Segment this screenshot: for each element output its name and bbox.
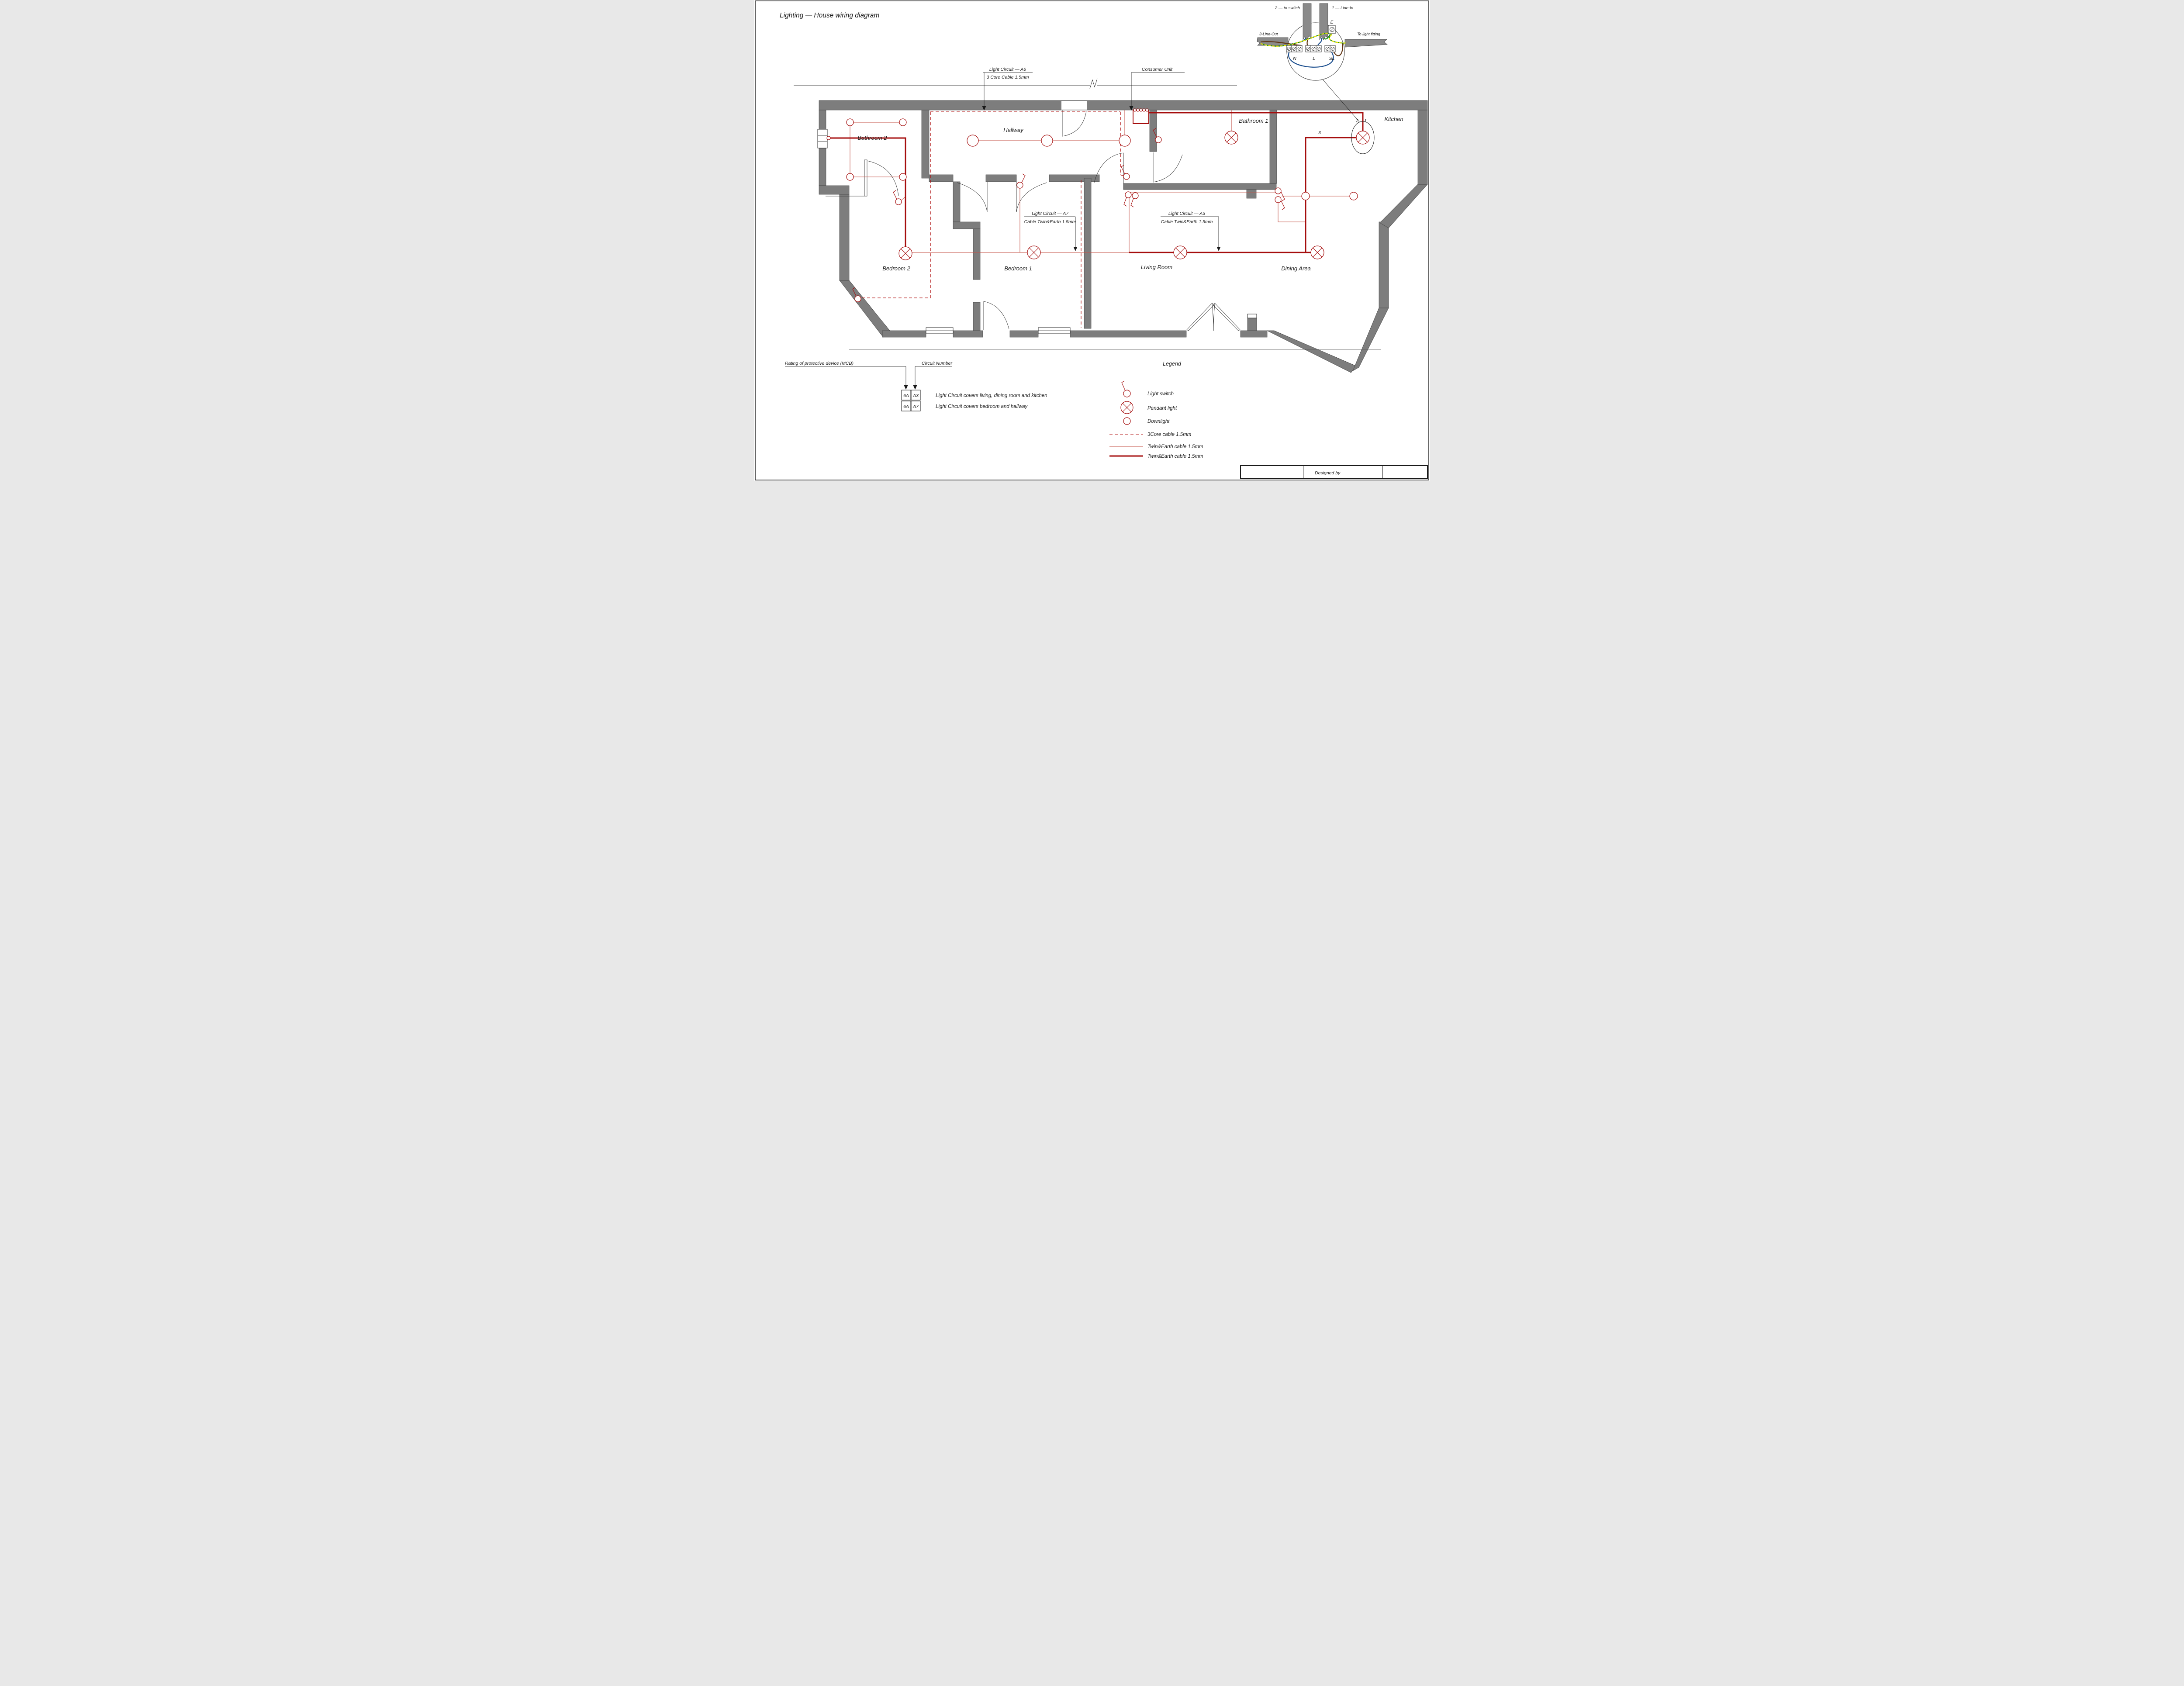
terminal-sl-label: SL bbox=[1329, 56, 1335, 61]
label-to-switch: 2 — to switch bbox=[1275, 6, 1300, 10]
consumer-unit-box bbox=[1133, 111, 1149, 124]
wall-stub-dining bbox=[1247, 190, 1256, 198]
room-label-bedroom1: Bedroom 1 bbox=[1004, 265, 1032, 272]
title-block: Designed by bbox=[1241, 466, 1427, 479]
drawing-sheet: Lighting — House wiring diagram bbox=[754, 0, 1430, 481]
circuit-number-label: Circuit Number bbox=[922, 361, 953, 366]
wall-bathroom2-right bbox=[922, 110, 929, 178]
legend-title: Legend bbox=[1163, 361, 1182, 367]
legend-thin-cable-label: Twin&Earth cable 1.5mm bbox=[1147, 444, 1203, 449]
downlight-icon bbox=[967, 135, 978, 146]
wall-bottom-4 bbox=[1070, 331, 1186, 337]
legend-downlight-label: Downlight bbox=[1147, 419, 1170, 424]
legend-thick-cable-label: Twin&Earth cable 1.5mm bbox=[1147, 454, 1203, 459]
window-left bbox=[818, 129, 827, 148]
wire-number-1: 1 bbox=[1364, 119, 1367, 124]
downlight-icon bbox=[1302, 192, 1310, 200]
pendant-light-icon bbox=[1027, 246, 1040, 259]
room-label-hallway: Hallway bbox=[1003, 127, 1024, 133]
a6-label: Light Circuit — A6 bbox=[989, 67, 1026, 72]
svg-text:A3: A3 bbox=[912, 393, 919, 398]
wiring-diagram-canvas: Lighting — House wiring diagram bbox=[754, 0, 1430, 481]
pendant-light-icon bbox=[1311, 246, 1324, 259]
wall-bottom-5 bbox=[1241, 331, 1267, 337]
svg-text:6A: 6A bbox=[903, 404, 909, 409]
a3-label: Light Circuit — A3 bbox=[1168, 211, 1205, 216]
pendant-light-icon bbox=[899, 247, 912, 260]
wall-divider-upper bbox=[953, 182, 960, 222]
pendant-light-icon bbox=[1174, 246, 1187, 259]
wall-divider-step bbox=[953, 222, 980, 229]
room-label-bedroom2: Bedroom 2 bbox=[882, 265, 910, 272]
chimney-cap bbox=[1248, 314, 1257, 318]
a6-cable-label: 3 Core Cable 1.5mm bbox=[987, 75, 1029, 80]
wall-divider-mid bbox=[973, 229, 980, 280]
mcb-row-1-desc: Light Circuit covers living, dining room… bbox=[936, 393, 1047, 398]
wall-left-step bbox=[819, 186, 849, 194]
downlight-icon bbox=[847, 173, 854, 180]
room-label-kitchen: Kitchen bbox=[1384, 116, 1403, 122]
wall-bathroom1-left bbox=[1150, 110, 1157, 152]
wall-bottom-2 bbox=[953, 331, 983, 337]
page-title: Lighting — House wiring diagram bbox=[780, 12, 879, 19]
front-door-gap bbox=[1061, 101, 1087, 110]
terminal-l-block bbox=[1306, 45, 1321, 52]
terminal-n-block bbox=[1286, 45, 1302, 52]
svg-text:6A: 6A bbox=[903, 393, 909, 398]
downlight-icon bbox=[1119, 135, 1130, 146]
svg-text:A7: A7 bbox=[912, 404, 919, 409]
wall-hallway-bottom-3 bbox=[1049, 175, 1099, 182]
designed-by-label: Designed by bbox=[1315, 470, 1341, 476]
terminal-n-label: N bbox=[1293, 56, 1296, 61]
wire-number-2: 2 bbox=[1355, 119, 1358, 124]
downlight-icon bbox=[1041, 135, 1053, 146]
pendant-light-icon bbox=[1225, 131, 1238, 144]
wall-hallway-bottom-2 bbox=[986, 175, 1016, 182]
legend-switch-label: Light switch bbox=[1147, 391, 1174, 397]
downlight-icon bbox=[899, 119, 906, 126]
downlight-icon bbox=[899, 173, 906, 180]
downlight-icon bbox=[1123, 418, 1130, 425]
terminal-sl-block bbox=[1325, 45, 1335, 52]
light-switch-icon bbox=[1123, 390, 1130, 397]
wall-right-upper bbox=[1418, 110, 1427, 184]
wall-left-upper bbox=[819, 110, 826, 129]
wall-top bbox=[819, 100, 1427, 110]
mcb-rating-label: Rating of protective device (MCB) bbox=[785, 361, 854, 366]
wall-bathroom1-right bbox=[1270, 110, 1277, 183]
wall-bedroom2-left bbox=[840, 194, 849, 280]
room-label-living: Living Room bbox=[1141, 264, 1172, 270]
mcb-row-2-desc: Light Circuit covers bedroom and hallway bbox=[936, 404, 1028, 409]
label-line-out: 3-Line-Out bbox=[1259, 32, 1278, 36]
label-line-in: 1 — Line-In bbox=[1332, 6, 1353, 10]
wall-bedroom1-right bbox=[1084, 178, 1091, 328]
wall-bottom-3 bbox=[1010, 331, 1038, 337]
a7-cable-label: Cable Twin&Earth 1.5mm bbox=[1024, 219, 1076, 225]
window-bottom-1 bbox=[926, 328, 953, 333]
label-to-light-fitting: To light fitting bbox=[1357, 32, 1380, 36]
a7-label: Light Circuit — A7 bbox=[1032, 211, 1069, 216]
wire-number-3: 3 bbox=[1318, 131, 1321, 135]
downlight-icon bbox=[847, 119, 854, 126]
chimney-breast bbox=[1248, 318, 1257, 331]
consumer-unit-label: Consumer Unit bbox=[1142, 67, 1173, 72]
wall-living-top bbox=[1123, 183, 1276, 190]
wall-left-lower bbox=[819, 148, 826, 186]
a3-cable-label: Cable Twin&Earth 1.5mm bbox=[1161, 219, 1213, 225]
wall-divider-lower bbox=[973, 302, 980, 331]
wall-right-mid bbox=[1379, 222, 1389, 308]
window-bottom-2 bbox=[1038, 328, 1070, 333]
wall-bottom-1 bbox=[882, 331, 926, 337]
downlight-icon bbox=[1350, 192, 1358, 200]
junction-icon bbox=[827, 136, 830, 140]
consumer-unit bbox=[1133, 109, 1149, 124]
wall-hallway-bottom-1 bbox=[929, 175, 953, 182]
room-label-bathroom2: Bathroom 2 bbox=[857, 135, 887, 141]
legend-pendant-label: Pendant light bbox=[1147, 406, 1177, 411]
terminal-e-label: E bbox=[1330, 20, 1334, 25]
bathroom2-door-leaf bbox=[864, 160, 867, 196]
legend-3core-label: 3Core cable 1.5mm bbox=[1147, 432, 1192, 437]
room-label-bathroom1: Bathroom 1 bbox=[1239, 117, 1268, 124]
room-label-dining: Dining Area bbox=[1281, 265, 1310, 272]
terminal-l-label: L bbox=[1313, 56, 1315, 61]
cable-to-switch bbox=[1303, 3, 1311, 40]
